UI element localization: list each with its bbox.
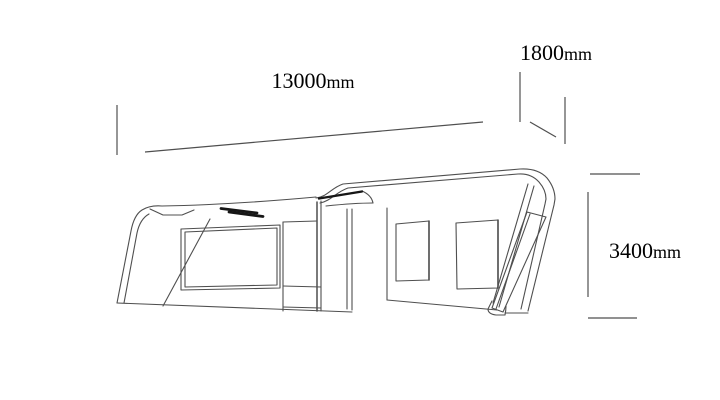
- rear-window-inner: [185, 228, 277, 287]
- bumper-foot: [488, 301, 506, 315]
- vehicle-linework: [117, 169, 555, 315]
- rear-window-outer: [181, 225, 280, 290]
- dimension-linework: [117, 72, 640, 318]
- roof-step-face-curve: [362, 191, 373, 203]
- dim-length-line: [145, 122, 483, 152]
- vehicle-dimension-drawing: 13000mm 1800mm 3400mm: [0, 0, 720, 400]
- roof-notch: [150, 209, 194, 215]
- front-panel-bottom-edge: [387, 300, 497, 310]
- door-top-line: [283, 221, 317, 222]
- dim-width-line: [530, 122, 556, 137]
- vehicle-rear-edge-inner: [124, 214, 149, 303]
- dim-length-value: 13000: [271, 68, 326, 93]
- door-lower-panel-line: [283, 307, 321, 308]
- front-door-glass-inner-edge: [496, 214, 530, 309]
- dim-width-value: 1800: [520, 40, 564, 65]
- dim-length-label: 13000mm: [271, 68, 354, 93]
- front-window-1: [396, 221, 429, 281]
- dim-height-label: 3400mm: [609, 238, 681, 263]
- door-window-bottom-line: [283, 286, 321, 287]
- roof-step-face-line: [326, 203, 373, 206]
- front-window-2: [456, 220, 498, 289]
- windshield-pillar-outer-line: [499, 186, 534, 307]
- front-roof-and-nose-inner: [320, 174, 546, 309]
- dark-accents: [221, 192, 362, 217]
- drawing-canvas: 13000mm 1800mm 3400mm: [0, 0, 720, 400]
- dim-length-unit: mm: [326, 72, 354, 92]
- dim-width-label: 1800mm: [520, 40, 592, 65]
- dimension-labels: 13000mm 1800mm 3400mm: [271, 40, 681, 263]
- dim-width-unit: mm: [564, 44, 592, 64]
- dim-height-unit: mm: [653, 242, 681, 262]
- vehicle-rear-edge-and-roofline: [117, 197, 316, 303]
- dim-height-value: 3400: [609, 238, 653, 263]
